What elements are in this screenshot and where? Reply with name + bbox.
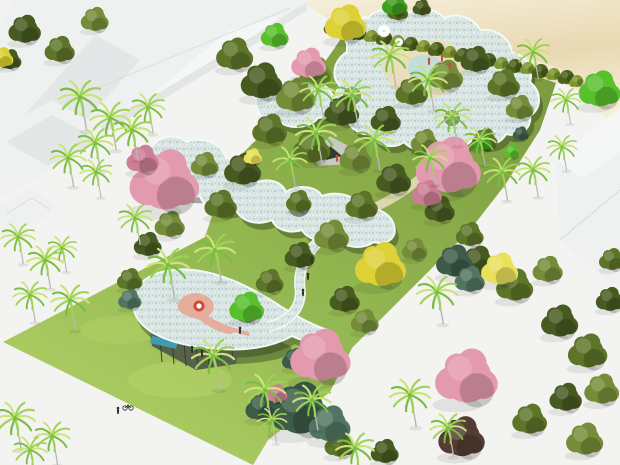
rendering-image [0,0,620,465]
aerial-rendering-canvas [0,0,620,465]
roof-red-ring-center [196,303,201,308]
